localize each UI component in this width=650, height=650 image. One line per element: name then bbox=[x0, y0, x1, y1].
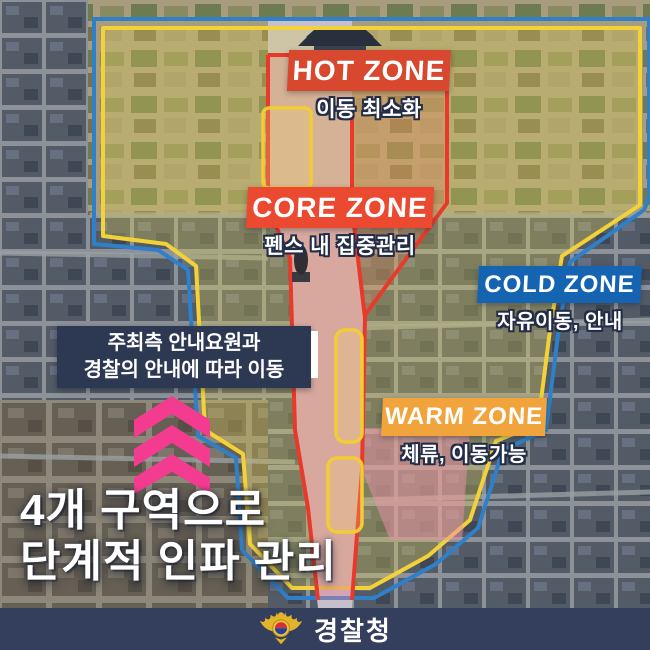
core-zone-desc: 펜스 내 집중관리 bbox=[215, 230, 465, 260]
infographic-frame: HOT ZONE 이동 최소화 CORE ZONE 펜스 내 집중관리 COLD… bbox=[0, 0, 650, 650]
hot-zone-label: HOT ZONE bbox=[287, 50, 451, 91]
warm-zone-desc: 체류, 이동가능 bbox=[364, 438, 564, 467]
headline-line2: 단계적 인파 관리 bbox=[20, 525, 337, 589]
cold-zone-label: COLD ZONE bbox=[477, 266, 642, 303]
footer-bar: 경찰청 bbox=[0, 608, 650, 650]
agency-name: 경찰청 bbox=[314, 611, 392, 648]
cold-zone-desc: 자유이동, 안내 bbox=[460, 305, 650, 334]
guidance-box: 주최측 안내요원과 경찰의 안내에 따라 이동 bbox=[57, 326, 311, 388]
core-zone-label: CORE ZONE bbox=[246, 187, 434, 228]
korean-police-emblem-icon bbox=[258, 610, 304, 648]
hot-zone-desc: 이동 최소화 bbox=[269, 93, 469, 123]
warm-zone-label: WARM ZONE bbox=[381, 398, 547, 436]
guidance-accent-bar bbox=[311, 331, 318, 378]
guidance-line1: 주최측 안내요원과 bbox=[108, 330, 261, 357]
guidance-line2: 경찰의 안내에 따라 이동 bbox=[84, 357, 285, 384]
